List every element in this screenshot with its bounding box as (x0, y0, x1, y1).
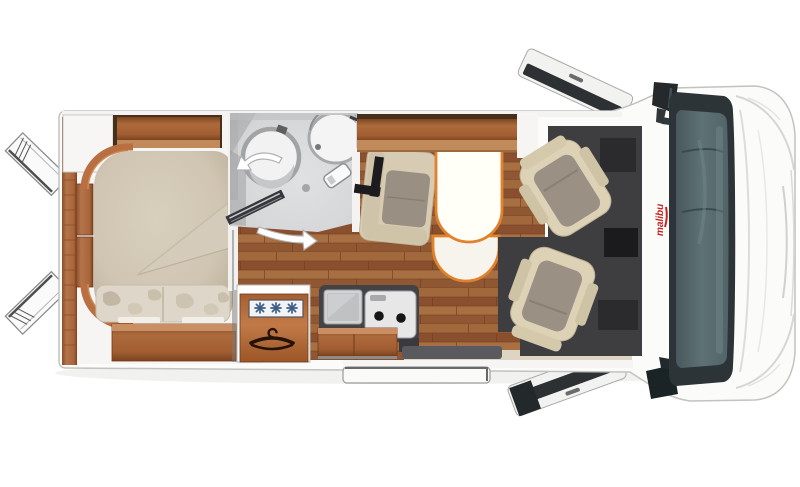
svg-text:malibu: malibu (655, 204, 666, 236)
